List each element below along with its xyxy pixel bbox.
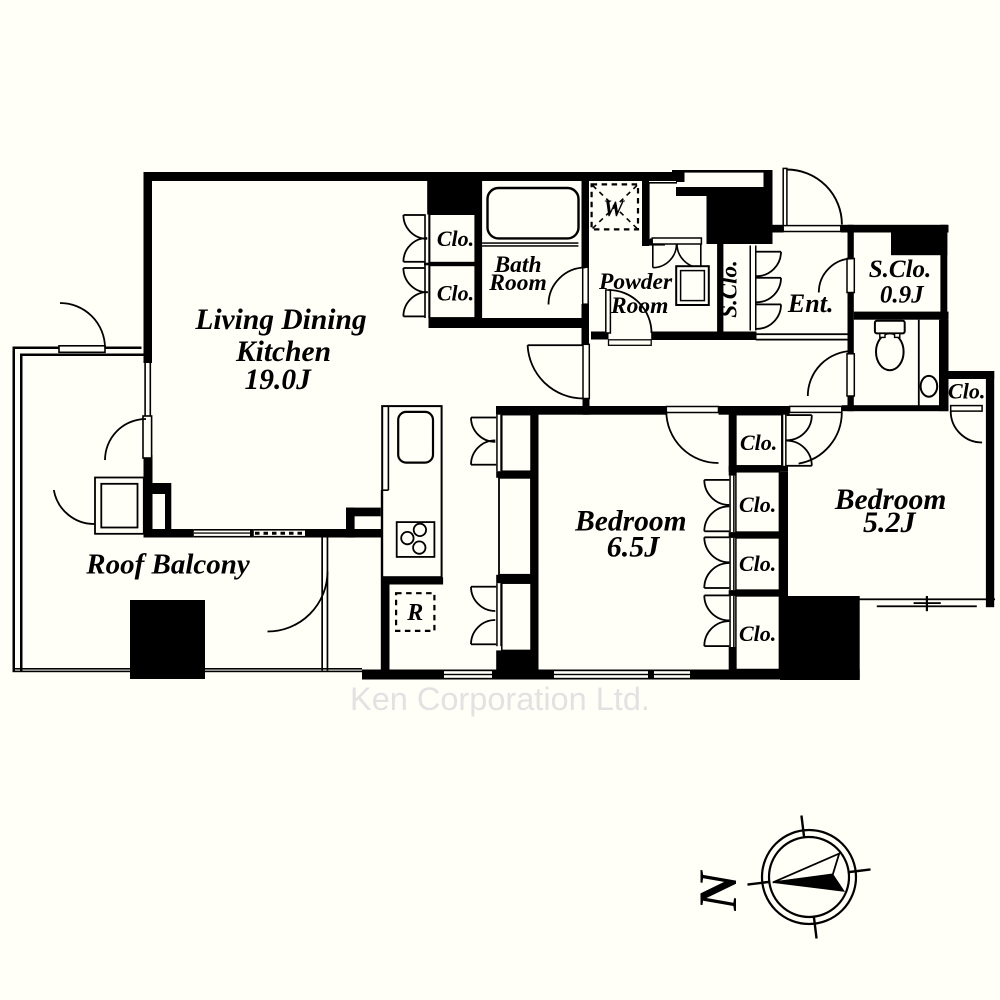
svg-text:Room: Room <box>488 270 546 296</box>
svg-text:Clo.: Clo. <box>437 281 474 306</box>
svg-text:Clo.: Clo. <box>739 621 776 646</box>
svg-text:Powder: Powder <box>598 269 673 295</box>
svg-text:S.Clo.: S.Clo. <box>869 256 932 283</box>
svg-text:Clo.: Clo. <box>948 379 985 404</box>
svg-text:Clo.: Clo. <box>740 430 777 455</box>
svg-text:Ken Corporation Ltd.: Ken Corporation Ltd. <box>350 681 650 717</box>
svg-text:0.9J: 0.9J <box>880 281 925 308</box>
svg-text:N: N <box>688 870 748 912</box>
svg-text:Clo.: Clo. <box>437 226 474 251</box>
svg-text:R: R <box>406 600 423 626</box>
svg-text:Roof Balcony: Roof Balcony <box>85 549 250 581</box>
svg-text:19.0J: 19.0J <box>245 364 313 396</box>
svg-text:Clo.: Clo. <box>739 492 776 517</box>
svg-text:Ent.: Ent. <box>787 289 834 318</box>
svg-text:Clo.: Clo. <box>739 551 776 576</box>
svg-text:W: W <box>603 196 625 221</box>
svg-text:5.2J: 5.2J <box>863 506 917 539</box>
svg-text:Living Dining: Living Dining <box>194 304 366 336</box>
svg-text:6.5J: 6.5J <box>607 531 661 564</box>
svg-text:Room: Room <box>610 293 668 319</box>
svg-text:S.Clo.: S.Clo. <box>717 260 742 318</box>
